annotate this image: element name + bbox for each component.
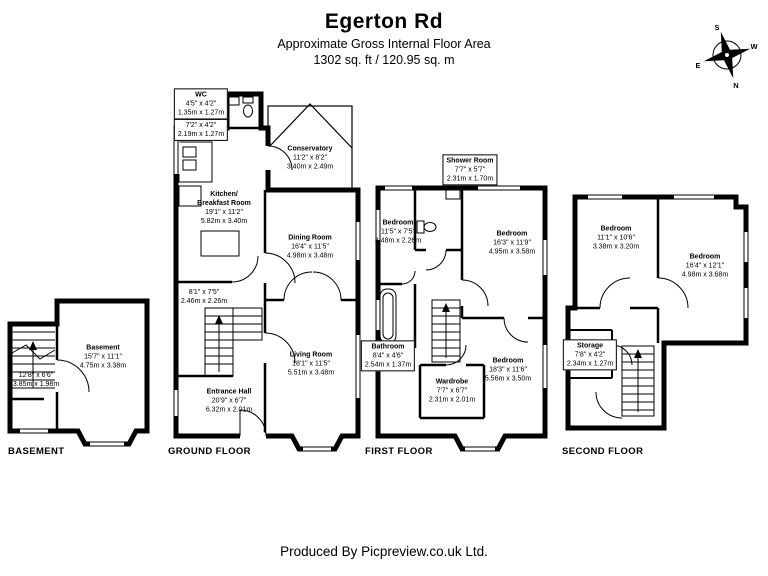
room-label-living: Living Room 18'1" x 11'5" 5.51m x 3.48m	[288, 350, 334, 377]
room-label-bedroom-bay-first: Bedroom 18'3" x 11'6" 5.56m x 3.50m	[485, 356, 531, 383]
room-label-entrance-hall: Entrance Hall 20'9" x 6'7" 6.32m x 2.01m	[206, 387, 252, 414]
floorplan-drawing: S W N E	[0, 0, 768, 576]
room-label-storage: Storage 7'8" x 4'2" 2.34m x 1.27m	[563, 339, 617, 370]
compass-letter-bottom: N	[733, 81, 738, 90]
room-label-ground-landing: 8'1" x 7'5" 2.46m x 2.26m	[181, 288, 227, 306]
compass-letter-left: E	[695, 61, 700, 70]
room-label-kitchen: Kitchen/ Breakfast Room 19'1" x 11'2" 5.…	[197, 190, 251, 226]
room-label-bathroom: Bathroom 8'4" x 4'6" 2.54m x 1.37m	[361, 340, 415, 371]
compass-letter-top: S	[714, 23, 719, 32]
floor-caption-basement: BASEMENT	[8, 446, 65, 457]
floor-caption-second: SECOND FLOOR	[562, 446, 643, 457]
room-label-bedroom-right-second: Bedroom 16'4" x 12'1" 4.98m x 3.68m	[682, 252, 728, 279]
floor-caption-first: FIRST FLOOR	[365, 446, 433, 457]
floorplan-page: Egerton Rd Approximate Gross Internal Fl…	[0, 0, 768, 576]
room-label-conservatory: Conservatory 11'2" x 8'2" 3.40m x 2.49m	[287, 144, 333, 171]
room-label-bedroom-left-second: Bedroom 11'1" x 10'6" 3.38m x 3.20m	[593, 224, 639, 251]
compass-letter-right: W	[750, 42, 758, 51]
footer-credit: Produced By Picpreview.co.uk Ltd.	[0, 544, 768, 559]
room-label-basement-hall: 12'8" x 6'6" 3.85m x 1.98m	[13, 371, 59, 389]
room-label-shower-room: Shower Room 7'7" x 5'7" 2.31m x 1.70m	[442, 154, 497, 185]
room-label-basement: Basement 15'7" x 11'1" 4.75m x 3.38m	[80, 343, 126, 370]
room-label-wardrobe: Wardrobe 7'7" x 6'7" 2.31m x 2.01m	[429, 377, 475, 404]
room-label-bedroom-rear-first: Bedroom 16'3" x 11'9" 4.95m x 3.58m	[489, 229, 535, 256]
room-label-ground-lobby: 7'2" x 4'2" 2.19m x 1.27m	[174, 119, 228, 141]
room-label-dining: Dining Room 16'4" x 11'5" 4.98m x 3.48m	[287, 233, 333, 260]
room-label-bedroom-front-first: Bedroom 11'5" x 7'5" 3.48m x 2.26m	[375, 218, 421, 245]
compass-rose-icon: S W N E	[695, 23, 758, 90]
floor-caption-ground: GROUND FLOOR	[168, 446, 251, 457]
room-label-wc: WC 4'5" x 4'2" 1.35m x 1.27m	[174, 88, 228, 119]
